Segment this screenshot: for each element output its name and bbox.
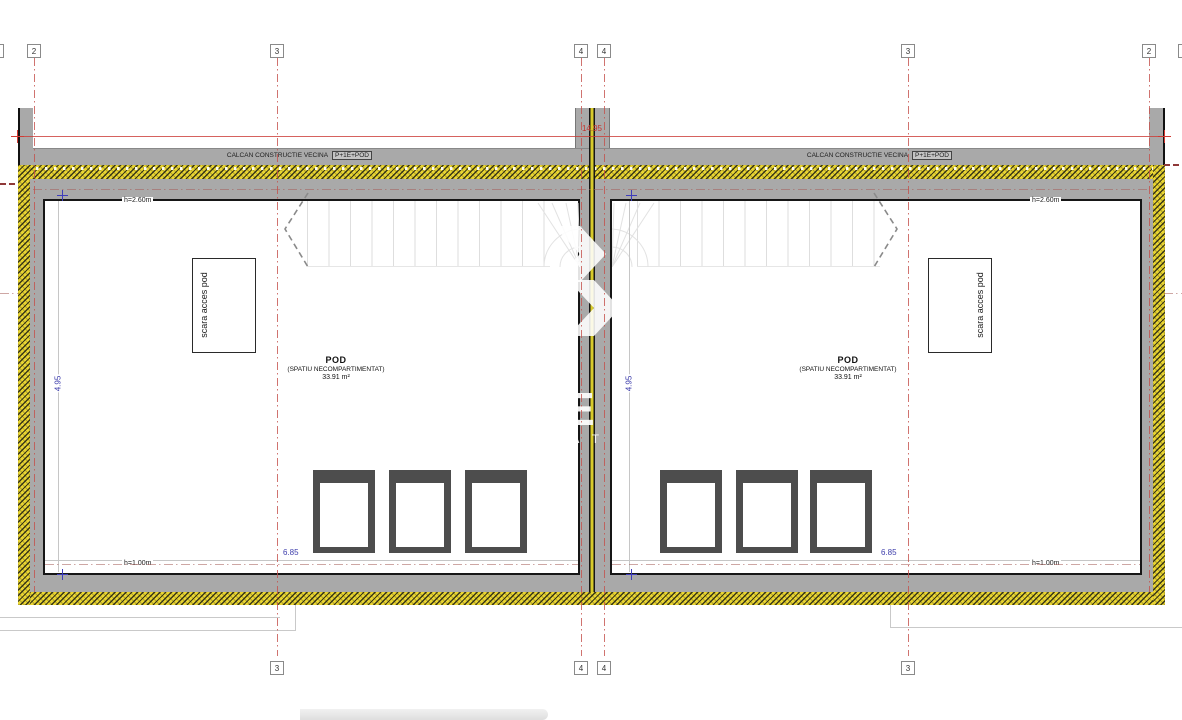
- section-ref-line-left-upper: [0, 617, 280, 618]
- section-ref-stub-left: [295, 605, 296, 631]
- grid-marker-top-edge-left: [0, 44, 4, 58]
- section-ref-line-left-lower: [0, 630, 295, 631]
- roof-window: [313, 470, 375, 553]
- grid-marker-bottom-3-left: 3: [270, 661, 284, 675]
- grid-marker-bottom-4-right: 4: [597, 661, 611, 675]
- calcan-badge-right: P+1E+POD: [912, 151, 952, 160]
- grid-marker-top-4-right: 4: [597, 44, 611, 58]
- section-ref-stub-right: [890, 605, 891, 628]
- watermark-letter: E: [564, 386, 595, 432]
- stair-access-label-right: scara acces pod: [975, 272, 985, 338]
- grid-axis-3-right: [908, 58, 909, 656]
- watermark-chevron-icon: [540, 218, 660, 348]
- grid-marker-top-3-right: 3: [901, 44, 915, 58]
- grid-marker-bottom-4-left: 4: [574, 661, 588, 675]
- axis-cross-blue: [57, 190, 68, 201]
- stair-treads-left: [307, 201, 550, 267]
- insulation-band-left: [18, 165, 30, 605]
- roof-window: [736, 470, 798, 553]
- edge-axis-dash-right-upper: [1164, 164, 1182, 166]
- width-dim-label-right: 6.85: [880, 548, 898, 557]
- axis-cross-blue: [626, 569, 637, 580]
- grid-axis-3-left: [277, 58, 278, 656]
- calcan-label-left: CALCAN CONSTRUCTIE VECINAP+1E+POD: [180, 151, 372, 160]
- stair-treads-right: [637, 201, 880, 267]
- stair-access-box-right: scara acces pod: [928, 258, 992, 353]
- stair-access-box-left: scara acces pod: [192, 258, 256, 353]
- room-label-left: POD (SPATIU NECOMPARTIMENTAT) 33.91 m²: [261, 355, 411, 381]
- dim-end-cross-left: [11, 130, 24, 143]
- height-line-bottom-right: [612, 564, 1140, 565]
- height-label-top-left: h=2.60m: [122, 197, 153, 204]
- axis-cross-blue: [57, 569, 68, 580]
- room-label-right: POD (SPATIU NECOMPARTIMENTAT) 33.91 m²: [773, 355, 923, 381]
- height-line-bottom-left: [45, 564, 578, 565]
- stair-direction-chevron-left: [280, 190, 314, 270]
- calcan-text-right: CALCAN CONSTRUCTIE VECINA: [807, 152, 908, 159]
- grid-marker-top-2-left: 2: [27, 44, 41, 58]
- grid-marker-top-edge-right: [1178, 44, 1182, 58]
- depth-dim-label-left: 4.95: [53, 374, 62, 392]
- room-subtitle-right: (SPATIU NECOMPARTIMENTAT): [773, 366, 923, 373]
- depth-dim-label-left-wrap: 4.95: [48, 360, 68, 406]
- height-label-top-right: h=2.60m: [1030, 197, 1061, 204]
- roof-window: [389, 470, 451, 553]
- total-dim-line: [18, 136, 1165, 137]
- grid-marker-top-3-left: 3: [270, 44, 284, 58]
- room-area-right: 33.91 m²: [773, 374, 923, 381]
- edge-axis-dash-left-mid: [0, 293, 18, 294]
- grid-axis-2-left: [34, 58, 35, 592]
- width-dim-label-left: 6.85: [282, 548, 300, 557]
- dim-end-cross-right: [1158, 130, 1171, 143]
- grid-marker-top-4-left: 4: [574, 44, 588, 58]
- watermark-logo: E C A T I: [540, 218, 660, 458]
- room-title-left: POD: [261, 355, 411, 365]
- section-ref-line-right: [890, 627, 1182, 628]
- room-title-right: POD: [773, 355, 923, 365]
- stair-access-label-left: scara acces pod: [199, 272, 209, 338]
- stair-direction-chevron-right: [868, 190, 902, 270]
- roof-window: [660, 470, 722, 553]
- grid-axis-2-right: [1149, 58, 1150, 592]
- grid-marker-bottom-3-right: 3: [901, 661, 915, 675]
- grid-axis-4-right: [604, 58, 605, 656]
- calcan-badge-left: P+1E+POD: [332, 151, 372, 160]
- total-dim-label: 14.95: [576, 124, 608, 133]
- roof-window: [810, 470, 872, 553]
- room-subtitle-left: (SPATIU NECOMPARTIMENTAT): [261, 366, 411, 373]
- roof-window: [465, 470, 527, 553]
- bottom-bar: [300, 709, 548, 720]
- insulation-band-right: [1153, 165, 1165, 605]
- room-area-left: 33.91 m²: [261, 374, 411, 381]
- insulation-band-bottom: [18, 592, 1165, 605]
- top-wall-axis-line: [33, 189, 1149, 190]
- watermark-text-fragment: C A T I: [550, 432, 621, 446]
- edge-axis-dash-right-mid: [1164, 293, 1182, 294]
- axis-cross-blue: [626, 190, 637, 201]
- grid-marker-top-2-right: 2: [1142, 44, 1156, 58]
- floor-plan-canvas: { "colors": { "wall_gray": "#a9a9a9", "i…: [0, 0, 1182, 720]
- grid-axis-4-left: [581, 58, 582, 656]
- calcan-label-right: CALCAN CONSTRUCTIE VECINAP+1E+POD: [760, 151, 952, 160]
- edge-axis-dash-left-upper: [0, 183, 18, 185]
